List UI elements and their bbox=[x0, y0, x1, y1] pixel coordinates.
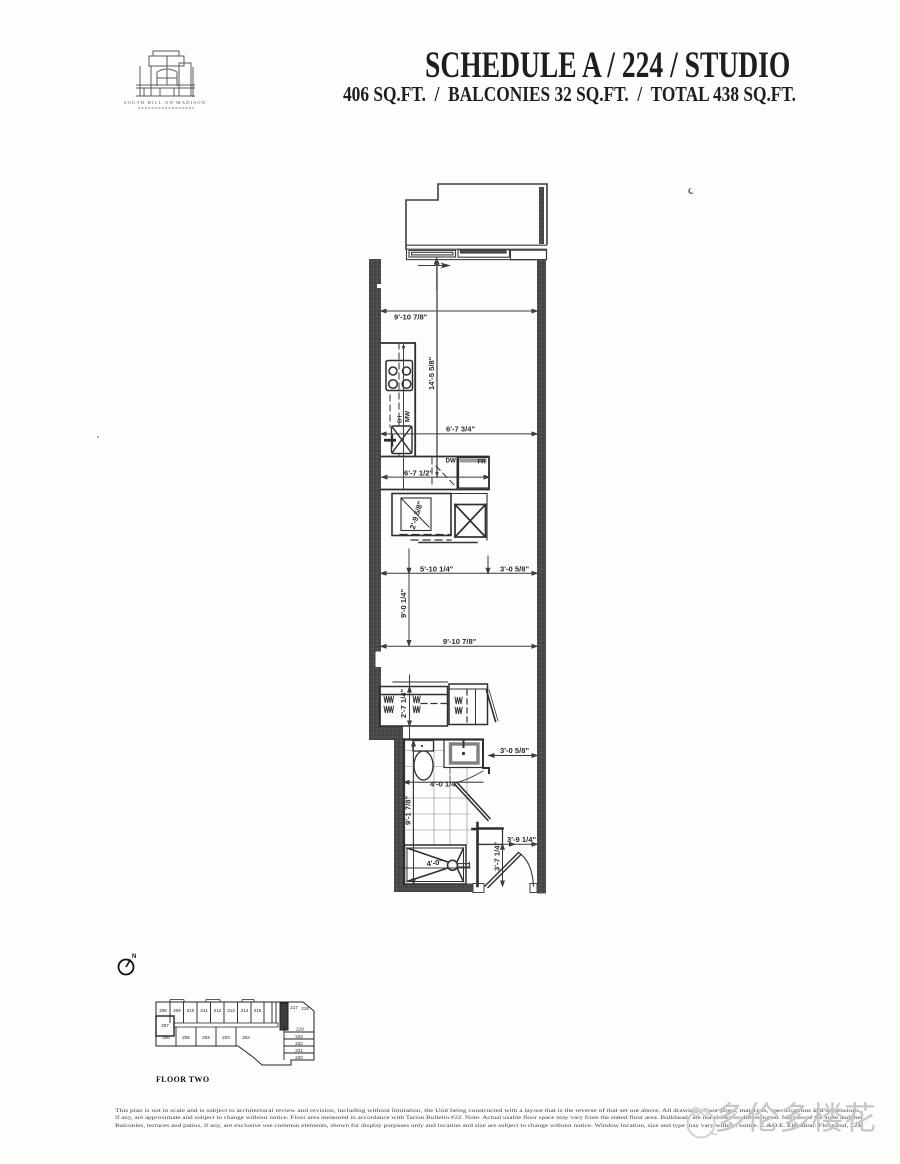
svg-text:4'-0": 4'-0" bbox=[426, 857, 444, 868]
svg-text:221: 221 bbox=[295, 1048, 303, 1053]
svg-text:203: 203 bbox=[222, 1035, 230, 1040]
svg-text:223: 223 bbox=[295, 1034, 303, 1039]
svg-text:207: 207 bbox=[161, 1023, 169, 1028]
svg-text:222: 222 bbox=[295, 1041, 303, 1046]
svg-text:N: N bbox=[132, 954, 136, 960]
svg-text:5'-10 1/4": 5'-10 1/4" bbox=[420, 565, 454, 574]
svg-text:219: 219 bbox=[296, 1027, 304, 1032]
svg-text:202: 202 bbox=[242, 1035, 250, 1040]
svg-text:2'-7 1/4": 2'-7 1/4" bbox=[399, 689, 408, 718]
svg-text:4'-0 1/4": 4'-0 1/4" bbox=[430, 780, 459, 789]
svg-text:205: 205 bbox=[182, 1035, 190, 1040]
svg-text:206: 206 bbox=[162, 1035, 170, 1040]
svg-text:211: 211 bbox=[200, 1008, 208, 1013]
svg-text:215: 215 bbox=[254, 1008, 262, 1013]
svg-text:3'-7 1/4": 3'-7 1/4" bbox=[493, 842, 502, 871]
svg-text:208: 208 bbox=[159, 1008, 167, 1013]
svg-text:3'-0 5/8": 3'-0 5/8" bbox=[500, 565, 529, 574]
svg-text:9'-1 7/8": 9'-1 7/8" bbox=[404, 796, 413, 825]
svg-text:220: 220 bbox=[295, 1055, 303, 1060]
svg-text:9'-0 1/4": 9'-0 1/4" bbox=[399, 589, 408, 618]
svg-text:3'-9 1/4": 3'-9 1/4" bbox=[507, 835, 536, 844]
svg-text:210: 210 bbox=[187, 1008, 195, 1013]
svg-text:218: 218 bbox=[301, 1006, 309, 1011]
svg-text:214: 214 bbox=[241, 1008, 249, 1013]
svg-text:3'-0 5/8": 3'-0 5/8" bbox=[500, 746, 529, 755]
svg-text:217: 217 bbox=[290, 1005, 298, 1010]
svg-text:212: 212 bbox=[214, 1008, 222, 1013]
svg-text:9'-10 7/8": 9'-10 7/8" bbox=[443, 637, 477, 646]
svg-text:2'-9 5/8": 2'-9 5/8" bbox=[408, 500, 425, 531]
svg-text:213: 213 bbox=[227, 1008, 235, 1013]
svg-text:204: 204 bbox=[202, 1035, 210, 1040]
svg-text:209: 209 bbox=[173, 1008, 181, 1013]
